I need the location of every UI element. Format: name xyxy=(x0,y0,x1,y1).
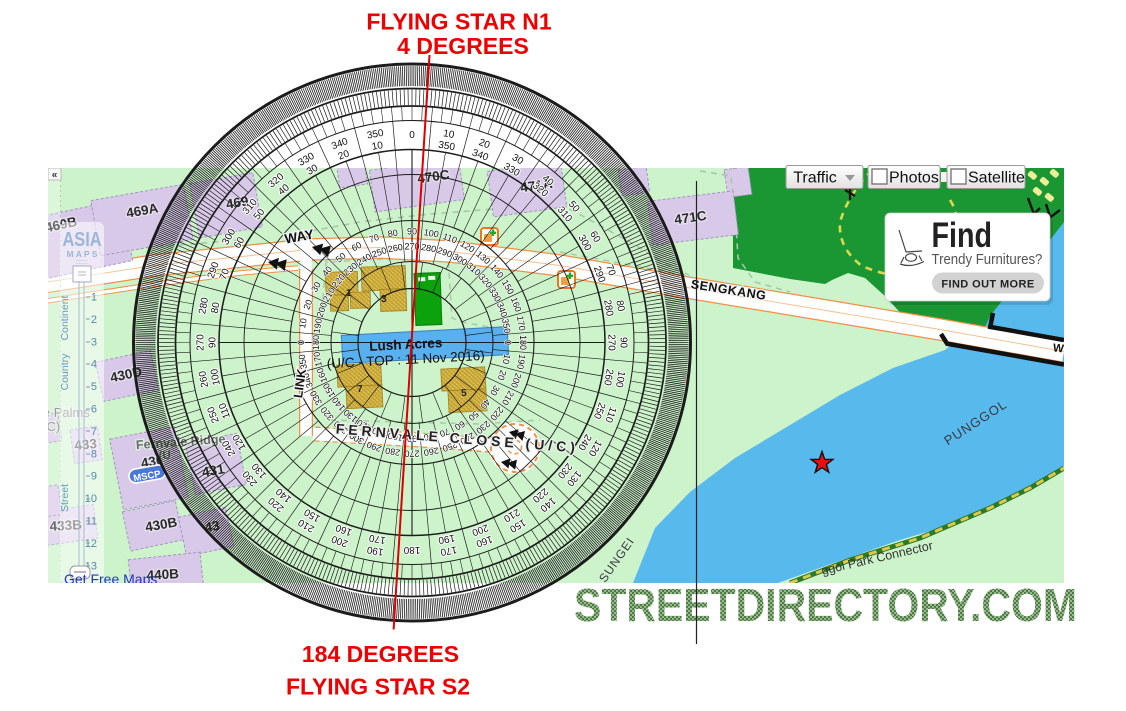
svg-text:ASIA: ASIA xyxy=(62,227,101,250)
svg-text:::::::: :::::: xyxy=(76,259,88,266)
svg-text:10: 10 xyxy=(501,353,513,365)
svg-text:4 DEGREES: 4 DEGREES xyxy=(397,33,529,59)
svg-text:1: 1 xyxy=(91,292,97,304)
svg-text:90: 90 xyxy=(407,227,417,237)
svg-text:FIND OUT MORE: FIND OUT MORE xyxy=(941,279,1034,291)
svg-text:7: 7 xyxy=(357,384,364,395)
svg-text:270: 270 xyxy=(606,334,617,351)
svg-text:Traffic: Traffic xyxy=(793,170,837,187)
svg-text:270: 270 xyxy=(404,448,419,458)
svg-text:6: 6 xyxy=(91,404,97,416)
svg-text:12: 12 xyxy=(85,538,97,550)
svg-text:80: 80 xyxy=(387,228,399,240)
svg-text:9: 9 xyxy=(91,471,97,483)
svg-text:7: 7 xyxy=(91,426,97,438)
svg-text:FLYING STAR S2: FLYING STAR S2 xyxy=(286,674,470,700)
svg-text:W: W xyxy=(1052,342,1064,355)
svg-text:4: 4 xyxy=(91,359,97,371)
svg-text:0: 0 xyxy=(409,130,415,141)
svg-text:1: 1 xyxy=(346,288,353,299)
svg-text:0: 0 xyxy=(503,340,513,345)
svg-text:180: 180 xyxy=(518,335,528,350)
svg-text:Find: Find xyxy=(932,215,993,254)
svg-text:Country: Country xyxy=(59,353,71,391)
svg-text:3: 3 xyxy=(91,336,97,348)
svg-text:0: 0 xyxy=(296,340,306,345)
svg-text:180: 180 xyxy=(311,335,321,350)
svg-text:180: 180 xyxy=(403,544,420,555)
svg-text:8: 8 xyxy=(91,448,97,460)
svg-text:184 DEGREES: 184 DEGREES xyxy=(302,641,459,667)
svg-text:90: 90 xyxy=(208,337,219,349)
svg-text:Satellite: Satellite xyxy=(968,170,1025,187)
svg-text:STREETDIRECTORY.COM: STREETDIRECTORY.COM xyxy=(574,579,1077,631)
svg-text:FLYING STAR N1: FLYING STAR N1 xyxy=(366,9,552,35)
svg-text:5: 5 xyxy=(91,381,97,393)
svg-text:Photos: Photos xyxy=(889,170,939,187)
svg-text:Street: Street xyxy=(59,484,71,512)
svg-text:M A P S: M A P S xyxy=(67,249,98,259)
svg-text:90: 90 xyxy=(618,337,629,349)
svg-text:2: 2 xyxy=(91,314,97,326)
svg-text:Trendy Furnitures?: Trendy Furnitures? xyxy=(932,250,1043,267)
svg-text:270: 270 xyxy=(196,334,207,351)
svg-text:«: « xyxy=(52,170,58,181)
svg-text:5: 5 xyxy=(461,388,468,399)
svg-text:Continent: Continent xyxy=(59,295,71,340)
svg-text:10: 10 xyxy=(297,317,309,329)
